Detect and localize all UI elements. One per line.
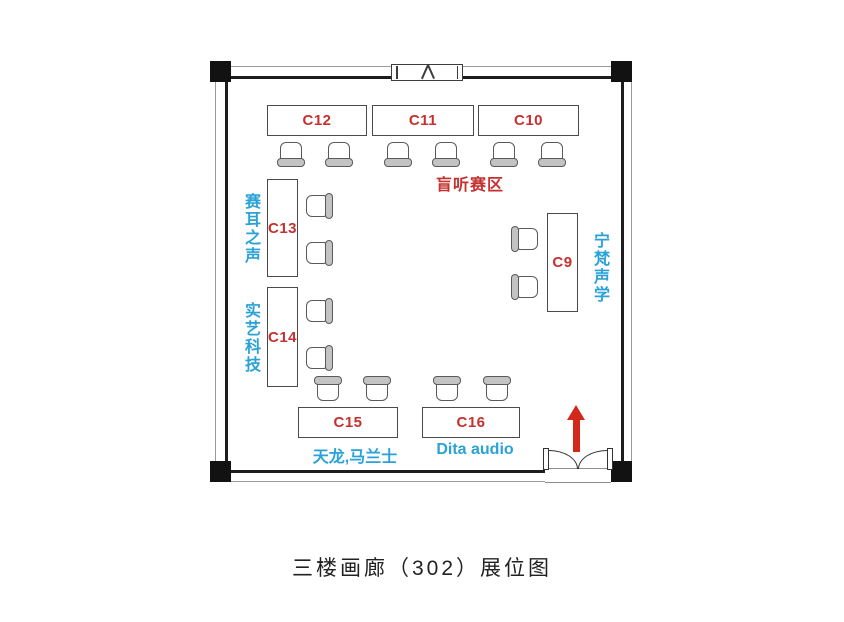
chair-icon xyxy=(277,142,303,167)
door-leaf-icon xyxy=(543,448,549,470)
booth-c13: C13 xyxy=(267,179,298,277)
brand-label-c16: Dita audio xyxy=(425,441,525,459)
chair-icon xyxy=(306,193,333,217)
chair-icon xyxy=(306,298,333,322)
window-icon xyxy=(391,64,463,81)
chair-icon xyxy=(363,376,389,401)
door-leaf-icon xyxy=(607,448,613,470)
booth-c12: C12 xyxy=(267,105,367,136)
booth-label: C14 xyxy=(268,329,297,346)
chair-icon xyxy=(325,142,351,167)
chair-icon xyxy=(432,142,458,167)
booth-label: C10 xyxy=(514,112,543,129)
page-title: 三楼画廊（302）展位图 xyxy=(0,552,844,582)
booth-c9: C9 xyxy=(547,213,578,312)
booth-c14: C14 xyxy=(267,287,298,387)
booth-c15: C15 xyxy=(298,407,398,438)
booth-label: C16 xyxy=(456,414,485,431)
door-opening xyxy=(545,468,611,483)
corner-column-icon xyxy=(611,461,632,482)
brand-label-c15: 天龙,马兰士 xyxy=(305,443,405,467)
booth-label: C11 xyxy=(409,112,437,129)
entrance-arrow-icon xyxy=(567,405,585,420)
zone-label-blind-listening: 盲听赛区 xyxy=(436,171,504,195)
booth-c11: C11 xyxy=(372,105,474,136)
window-frame xyxy=(396,66,398,79)
corner-column-icon xyxy=(210,461,231,482)
window-frame xyxy=(457,66,459,79)
chair-icon xyxy=(306,240,333,264)
chair-icon xyxy=(483,376,509,401)
booth-label: C12 xyxy=(302,112,331,129)
chair-icon xyxy=(511,274,538,298)
floorplan: C12 C11 C10 C13 C14 C9 C15 C16 盲听赛区 赛耳之声… xyxy=(0,0,844,622)
booth-label: C13 xyxy=(268,220,297,237)
entrance-arrow-icon xyxy=(573,419,580,452)
booth-c10: C10 xyxy=(478,105,579,136)
chair-icon xyxy=(306,345,333,369)
chair-icon xyxy=(511,226,538,250)
chair-icon xyxy=(538,142,564,167)
chair-icon xyxy=(384,142,410,167)
brand-label-c13: 赛耳之声 xyxy=(238,193,262,265)
brand-label-c14: 实艺科技 xyxy=(238,302,262,374)
corner-column-icon xyxy=(611,61,632,82)
chair-icon xyxy=(314,376,340,401)
chair-icon xyxy=(433,376,459,401)
booth-label: C15 xyxy=(333,414,362,431)
booth-c16: C16 xyxy=(422,407,520,438)
corner-column-icon xyxy=(210,61,231,82)
chair-icon xyxy=(490,142,516,167)
booth-label: C9 xyxy=(552,254,572,271)
brand-label-c9: 宁梵声学 xyxy=(587,232,611,304)
window-mark xyxy=(427,65,434,79)
